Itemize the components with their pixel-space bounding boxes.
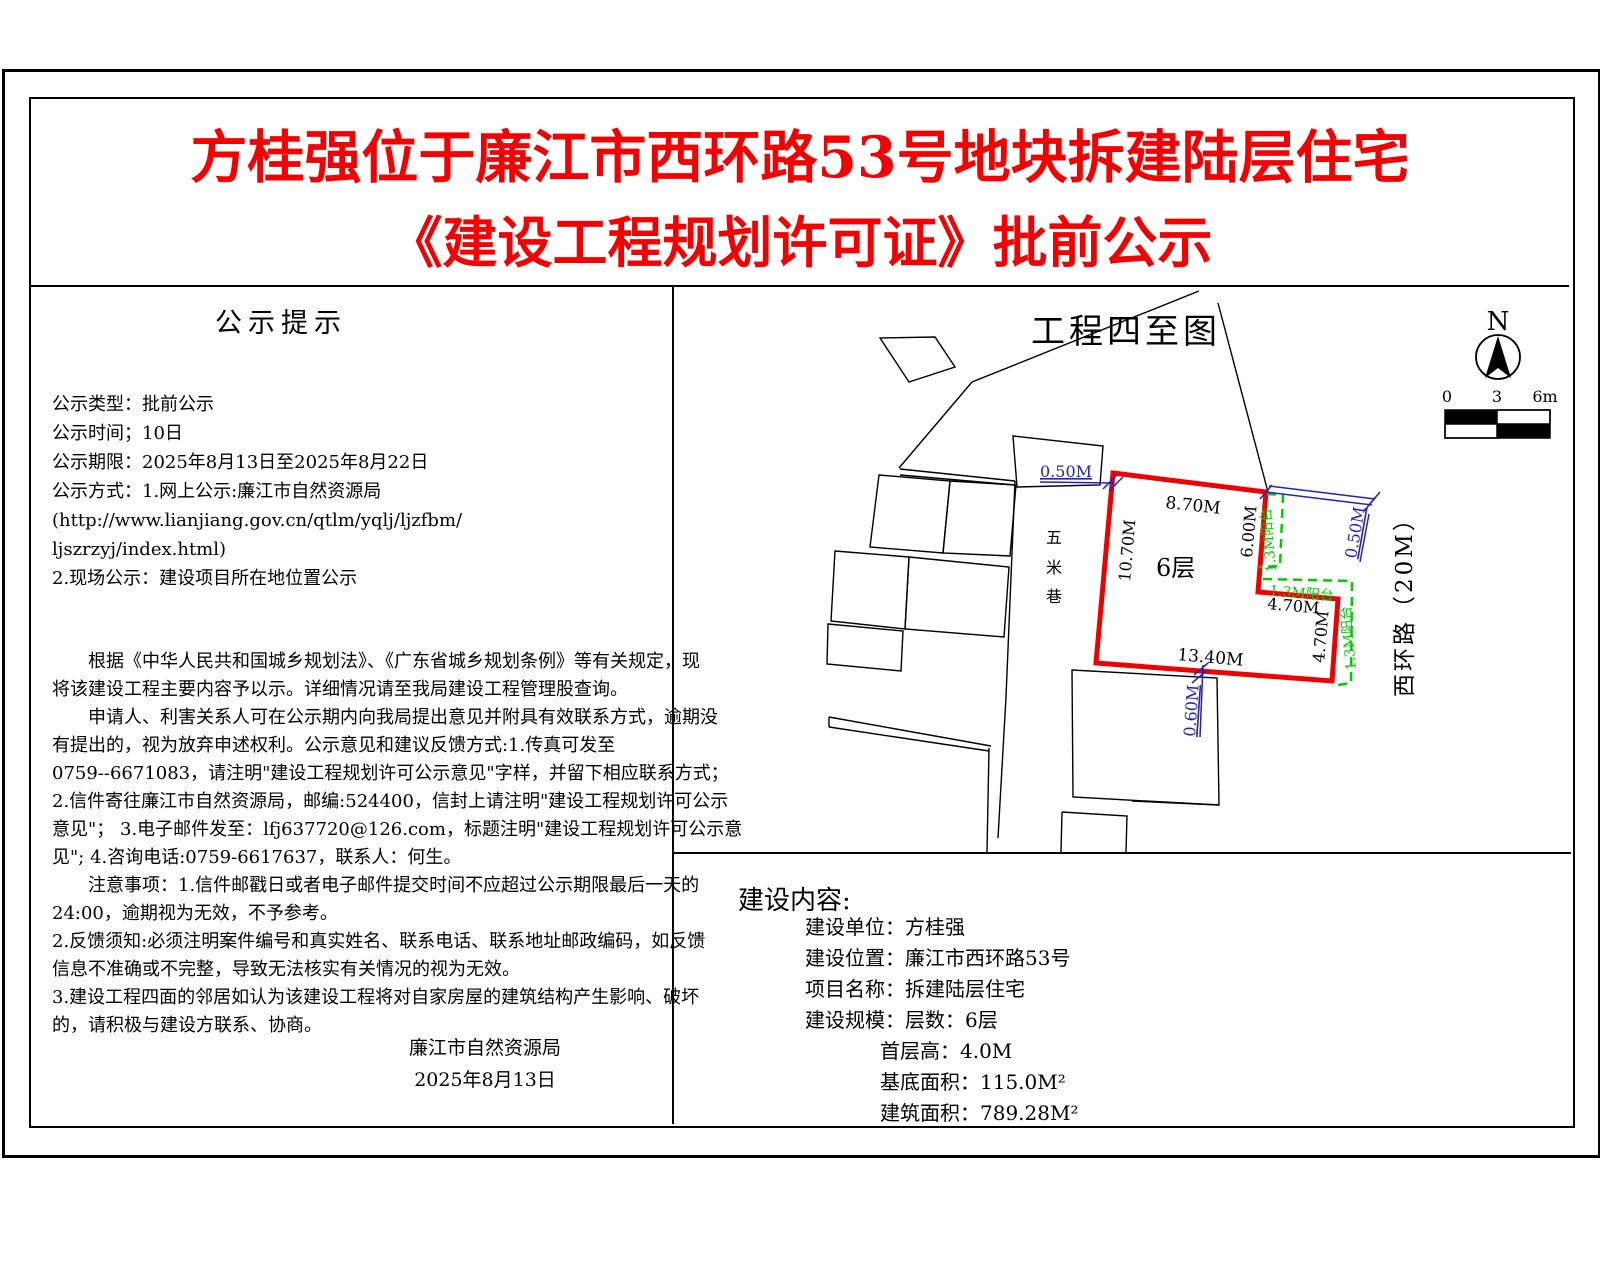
road-label: 西环路（20M）	[1392, 505, 1418, 697]
notice-body-line: 0759--6671083，请注明"建设工程规划许可公示意见"字样，并留下相应联…	[52, 760, 742, 788]
dim-right-upper: 6.00M	[1237, 505, 1260, 558]
notice-body-line: 2.信件寄往廉江市自然资源局，邮编:524400，信封上请注明"建设工程规划许可…	[52, 788, 742, 816]
notice-info-line: (http://www.lianjiang.gov.cn/qtlm/yqlj/l…	[52, 506, 462, 535]
notice-body-line: 注意事项：1.信件邮戳日或者电子邮件提交时间不应超过公示期限最后一天的	[52, 872, 742, 900]
notice-info-line: ljszrzyj/index.html)	[52, 535, 462, 564]
content-row: 建设位置：廉江市西环路53号	[805, 943, 1070, 974]
site-plan-drawing: 工程四至图 1.3M阳台 1.3M阳台 1.3M阳台	[672, 285, 1571, 852]
content-row: 建设单位：方桂强	[805, 912, 1070, 943]
dim-top: 8.70M	[1164, 493, 1221, 519]
notice-body-line: 将该建设工程主要内容予以示。详细情况请至我局建设工程管理股查询。	[52, 676, 742, 704]
notice-body-line: 申请人、利害关系人可在公示期内向我局提出意见并附具有效联系方式，逾期没	[52, 704, 742, 732]
notice-body-line: 见"; 4.咨询电话:0759-6617637，联系人：何生。	[52, 844, 742, 872]
dimension-texts: 8.70M 10.70M 6.00M 4.70M 4.70M 13.40M	[1115, 493, 1332, 671]
lane-char-1: 五	[1046, 528, 1062, 547]
notice-info-lines: 公示类型：批前公示公示时间；10日公示期限：2025年8月13日至2025年8月…	[52, 390, 462, 593]
balcony-label-3: 1.3M阳台	[1338, 605, 1360, 671]
scale-bar: 0 3 6m	[1442, 387, 1558, 438]
notice-body-lines: 根据《中华人民共和国城乡规划法》、《广东省城乡规划条例》等有关规定，现将该建设工…	[52, 648, 742, 1040]
notice-info-line: 公示期限：2025年8月13日至2025年8月22日	[52, 448, 462, 477]
site-plan-title: 工程四至图	[1031, 312, 1221, 352]
floors-label: 6层	[1156, 554, 1195, 582]
dim-step-v: 4.70M	[1309, 610, 1332, 663]
lane-char-2: 米	[1046, 558, 1062, 577]
notice-info-line: 公示方式：1.网上公示:廉江市自然资源局	[52, 477, 462, 506]
scale-label-6m: 6m	[1532, 387, 1557, 406]
notice-body-line: 3.建设工程四面的邻居如认为该建设工程将对自家房屋的建筑结构产生影响、破坏	[52, 984, 742, 1012]
lane-char-3: 巷	[1046, 587, 1062, 606]
notice-body-line: 信息不准确或不完整，导致无法核实有关情况的视为无效。	[52, 956, 742, 984]
lane-label: 五 米 巷	[1046, 528, 1062, 606]
notice-info-line: 公示类型：批前公示	[52, 390, 462, 419]
dim-gap-topleft: 0.50M	[1040, 462, 1092, 481]
dim-gap-bottom: 0.60M	[1180, 684, 1203, 737]
construction-content-panel: 建设内容: 建设单位：方桂强建设位置：廉江市西环路53号项目名称：拆建陆层住宅建…	[672, 852, 1571, 1124]
dim-step-h: 4.70M	[1267, 594, 1320, 617]
title-band: 方桂强位于廉江市西环路53号地块拆建陆层住宅 《建设工程规划许可证》批前公示	[31, 99, 1569, 287]
site-plan-panel: 工程四至图 1.3M阳台 1.3M阳台 1.3M阳台	[672, 285, 1571, 854]
notice-body-line: 根据《中华人民共和国城乡规划法》、《广东省城乡规划条例》等有关规定，现	[52, 648, 742, 676]
page-title-line1: 方桂强位于廉江市西环路53号地块拆建陆层住宅	[31, 112, 1569, 194]
content-row: 建筑面积：789.28M²	[880, 1098, 1078, 1129]
content-row: 项目名称：拆建陆层住宅	[805, 974, 1070, 1005]
notice-body-line: 2.反馈须知:必须注明案件编号和真实姓名、联系电话、联系地址邮政编码，如反馈	[52, 928, 742, 956]
notice-body-line: 24:00，逾期视为无效，不予参考。	[52, 900, 742, 928]
notice-heading: 公示提示	[215, 301, 347, 340]
signature-date: 2025年8月13日	[345, 1065, 625, 1092]
content-row: 基底面积：115.0M²	[880, 1067, 1078, 1098]
dim-left: 10.70M	[1115, 519, 1139, 583]
north-arrow: N	[1476, 307, 1520, 379]
dim-bottom: 13.40M	[1177, 645, 1245, 671]
notice-body-line: 有提出的，视为放弃申述权利。公示意见和建议反馈方式:1.传真可发至	[52, 732, 742, 760]
notice-body-line: 意见"； 3.电子邮件发至：lfj637720@126.com，标题注明"建设工…	[52, 816, 742, 844]
notice-info-line: 2.现场公示：建设项目所在地位置公示	[52, 564, 462, 593]
scale-label-0: 0	[1442, 387, 1452, 406]
page-title-line2: 《建设工程规划许可证》批前公示	[31, 198, 1569, 278]
scale-label-3: 3	[1492, 387, 1502, 406]
notice-info-line: 公示时间；10日	[52, 419, 462, 448]
signature-organization: 廉江市自然资源局	[345, 1033, 625, 1060]
content-rows-main: 建设单位：方桂强建设位置：廉江市西环路53号项目名称：拆建陆层住宅建设规模：层数…	[805, 912, 1070, 1036]
content-rows-sub: 首层高：4.0M基底面积：115.0M²建筑面积：789.28M²	[880, 1036, 1078, 1129]
content-row: 首层高：4.0M	[880, 1036, 1078, 1067]
notice-panel: 公示提示 公示类型：批前公示公示时间；10日公示期限：2025年8月13日至20…	[31, 285, 674, 1124]
north-label: N	[1487, 307, 1510, 337]
content-row: 建设规模：层数：6层	[805, 1005, 1070, 1036]
